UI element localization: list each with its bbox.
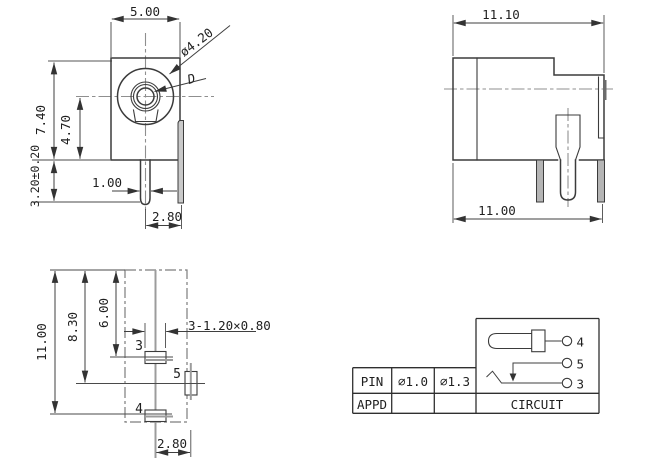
side-leg-right bbox=[598, 160, 605, 202]
front-pin-length-dim: 3.20±0.20 bbox=[28, 145, 42, 207]
table-dia-option-1: ∅1.0 bbox=[398, 374, 428, 389]
side-leg-left bbox=[537, 160, 544, 202]
circuit-plug-sleeve bbox=[532, 330, 545, 352]
pad-4-label: 4 bbox=[135, 402, 143, 417]
side-lock-tab bbox=[603, 80, 607, 100]
side-body bbox=[453, 58, 604, 160]
bottom-pin5-offset-dim: 2.80 bbox=[157, 436, 187, 451]
table-pin-header: PIN bbox=[361, 374, 384, 389]
table-circuit-label: CIRCUIT bbox=[511, 397, 564, 412]
front-pin-offset-dim: 2.80 bbox=[152, 209, 182, 224]
circuit-terminal-5 bbox=[562, 358, 571, 367]
bottom-pin5-distance-dim: 8.30 bbox=[65, 312, 80, 342]
front-pin-width-dim: 1.00 bbox=[92, 175, 122, 190]
bottom-slot-spec-label: 3-1.20×0.80 bbox=[188, 318, 271, 333]
pad-3 bbox=[145, 352, 166, 364]
bottom-pin3-distance-dim: 6.00 bbox=[96, 298, 111, 328]
front-width-dim: 5.00 bbox=[130, 4, 160, 19]
circuit-terminal-4 bbox=[562, 336, 571, 345]
side-dimension-labels: 11.10 11.00 bbox=[478, 7, 520, 218]
side-body-width-dim: 11.00 bbox=[478, 203, 516, 218]
pad-3-label: 3 bbox=[135, 339, 143, 354]
circuit-pin-3-label: 3 bbox=[577, 377, 585, 392]
pad-5-label: 5 bbox=[173, 367, 181, 382]
front-side-tab bbox=[178, 121, 184, 204]
side-centerlines bbox=[444, 89, 613, 207]
side-dimensions bbox=[453, 15, 604, 223]
front-pin-dia-ref-label: D bbox=[185, 70, 197, 87]
technical-drawing-canvas: 5.00 7.40 4.70 3.20±0.20 1.00 2.80 ø4.20… bbox=[0, 0, 662, 468]
circuit-contact-arrow bbox=[510, 374, 517, 382]
side-overall-width-dim: 11.10 bbox=[482, 7, 520, 22]
table-appd-label: APPD bbox=[357, 397, 387, 412]
side-body-outline bbox=[453, 58, 607, 202]
bottom-pads bbox=[145, 352, 197, 422]
circuit-terminal-3 bbox=[562, 378, 571, 387]
circuit-diagram: 4 5 3 bbox=[487, 330, 585, 392]
front-height-dim: 7.40 bbox=[33, 105, 48, 135]
table-dia-option-2: ∅1.3 bbox=[440, 374, 470, 389]
front-center-height-dim: 4.70 bbox=[58, 115, 73, 145]
front-view: 5.00 7.40 4.70 3.20±0.20 1.00 2.80 ø4.20… bbox=[28, 4, 230, 229]
circuit-wire-5 bbox=[513, 363, 562, 375]
spec-table: PIN ∅1.0 ∅1.3 APPD CIRCUIT 4 5 3 bbox=[353, 319, 599, 414]
circuit-switch-blade bbox=[487, 371, 562, 383]
circuit-pin-4-label: 4 bbox=[577, 335, 585, 350]
bottom-overall-length-dim: 11.00 bbox=[34, 323, 49, 361]
bottom-view: 11.00 8.30 6.00 3-1.20×0.80 3 5 4 2.80 bbox=[34, 270, 271, 458]
circuit-plug-barrel bbox=[489, 334, 533, 349]
circuit-pin-5-label: 5 bbox=[577, 357, 585, 372]
bottom-dimension-labels: 11.00 8.30 6.00 3-1.20×0.80 3 5 4 2.80 bbox=[34, 298, 271, 451]
side-view: 11.10 11.00 bbox=[444, 7, 613, 223]
technical-drawing-page: 5.00 7.40 4.70 3.20±0.20 1.00 2.80 ø4.20… bbox=[0, 0, 662, 468]
